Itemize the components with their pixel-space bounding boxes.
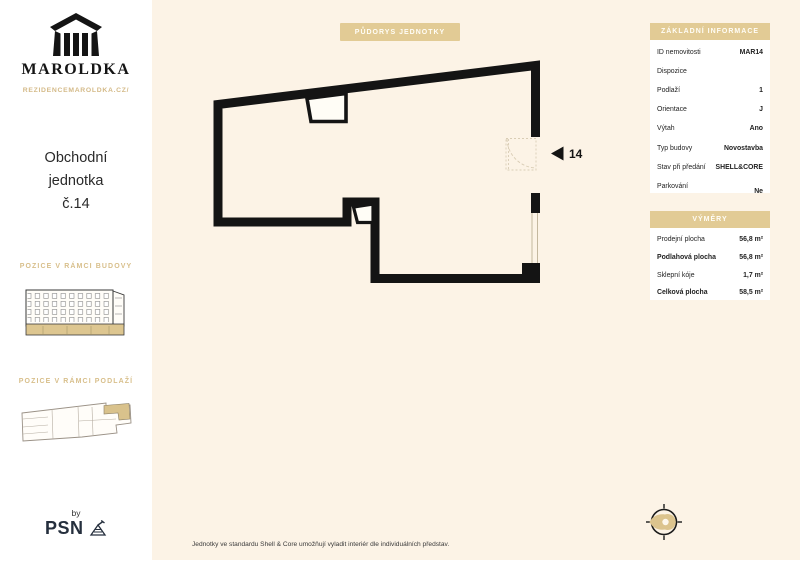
basic-info-panel: ZÁKLADNÍ INFORMACE ID nemovitostiMAR14 D… [650, 23, 770, 193]
compass-icon [640, 498, 688, 546]
corner-wall-block [522, 263, 540, 283]
sidebar: MAROLDKA REZIDENCEMAROLDKA.CZ/ Obchodní … [0, 0, 152, 566]
column-top [307, 94, 346, 122]
basic-info-title: ZÁKLADNÍ INFORMACE [650, 23, 770, 40]
unit-title: Obchodní jednotka č.14 [0, 147, 152, 216]
areas-title: VÝMĚRY [650, 211, 770, 228]
window-lines [532, 213, 538, 263]
footer-disclaimer: Jednotky ve standardu Shell & Core umožň… [192, 541, 622, 548]
column-step [354, 204, 374, 223]
brand-url-link[interactable]: REZIDENCEMAROLDKA.CZ/ [0, 87, 152, 94]
area-row: Sklepní kóje1,7 m² [657, 266, 763, 284]
unit-title-line: č.14 [0, 193, 152, 216]
info-row: Typ budovyNovostavba [657, 138, 763, 157]
building-elevation-thumbnail [25, 284, 127, 338]
section-heading-floor-position: POZICE V RÁMCI PODLAŽÍ [0, 378, 152, 385]
unit-title-line: jednotka [0, 170, 152, 193]
area-row: Prodejní plocha56,8 m² [657, 231, 763, 249]
walls [214, 66, 541, 279]
section-heading-building-position: POZICE V RÁMCI BUDOVY [0, 263, 152, 270]
info-row: ParkováníNe [657, 177, 763, 196]
areas-rows: Prodejní plocha56,8 m² Podlahová plocha5… [650, 228, 770, 302]
psn-logo: PSN [0, 518, 152, 539]
page: MAROLDKA REZIDENCEMAROLDKA.CZ/ Obchodní … [0, 0, 800, 566]
psn-surveyor-icon [89, 520, 107, 537]
info-row: Dispozice [657, 62, 763, 81]
info-row: Podlaží1 [657, 81, 763, 100]
door-swing [506, 139, 536, 171]
unit-title-line: Obchodní [0, 147, 152, 170]
info-row: VýtahAno [657, 119, 763, 138]
basic-info-rows: ID nemovitostiMAR14 Dispozice Podlaží1 O… [650, 40, 770, 196]
maroldka-building-icon [50, 10, 102, 60]
floor-plan-thumbnail [20, 399, 134, 447]
area-row: Podlahová plocha56,8 m² [657, 249, 763, 267]
entrance-arrow-icon [551, 147, 564, 161]
brand-name: MAROLDKA [0, 61, 152, 79]
info-row: ID nemovitostiMAR14 [657, 43, 763, 62]
unit-number-label: 14 [569, 147, 583, 161]
by-label: by [0, 508, 152, 518]
info-row: Stav při předáníSHELL&CORE [657, 158, 763, 177]
plan-title-badge: PŮDORYS JEDNOTKY [340, 23, 460, 41]
unit-floor-plan: 14 [190, 50, 600, 300]
info-row: OrientaceJ [657, 100, 763, 119]
psn-logo-text: PSN [45, 518, 84, 539]
area-row: Celková plocha58,5 m² [657, 284, 763, 302]
areas-panel: VÝMĚRY Prodejní plocha56,8 m² Podlahová … [650, 211, 770, 300]
